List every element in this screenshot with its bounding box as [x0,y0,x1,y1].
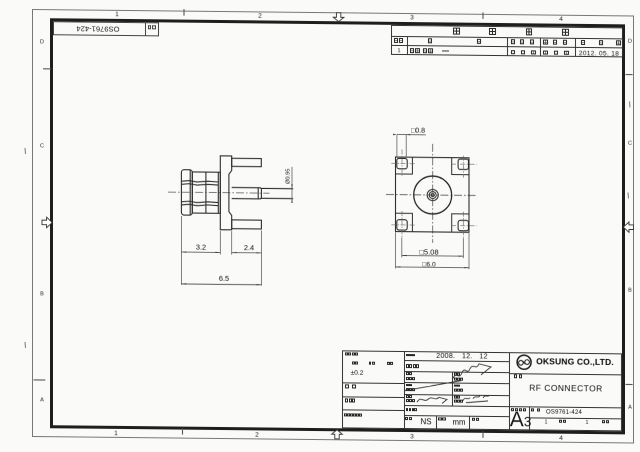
svg-text:Ø0.95: Ø0.95 [286,169,292,185]
